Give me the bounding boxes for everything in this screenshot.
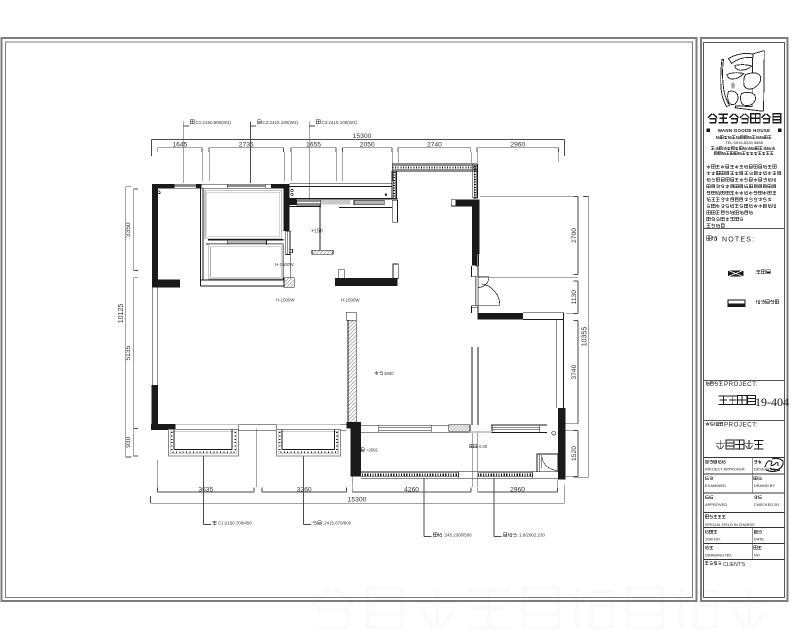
svg-text:DRAWING NO.: DRAWING NO. (705, 553, 732, 558)
svg-text:NO: NO (754, 553, 760, 558)
svg-text:1645: 1645 (172, 142, 187, 149)
svg-text::2415.670/900: :2415.670/900 (323, 521, 352, 526)
svg-text:2050: 2050 (360, 142, 375, 149)
svg-text:=2602: =2602 (366, 448, 378, 453)
svg-text:2900: 2900 (384, 371, 394, 376)
svg-text:TEL:0516-8333 5888: TEL:0516-8333 5888 (725, 140, 763, 145)
svg-text:CHECKED BY: CHECKED BY (754, 502, 780, 507)
svg-text:2960: 2960 (510, 487, 525, 494)
svg-text:H-1500W: H-1500W (276, 298, 295, 303)
svg-text:15300: 15300 (353, 133, 372, 140)
svg-text:3260: 3260 (297, 487, 312, 494)
svg-text::1.8/2902.230: :1.8/2902.230 (518, 533, 545, 538)
svg-text:2735: 2735 (239, 142, 254, 149)
svg-text:1655: 1655 (306, 142, 321, 149)
svg-text:PROJECT:: PROJECT: (724, 381, 758, 388)
svg-text:APPROVED: APPROVED (705, 502, 727, 507)
svg-text:1130: 1130 (571, 290, 578, 305)
svg-text::245.2300/500: :245.2300/500 (444, 533, 473, 538)
svg-text:SPECIAL FIELD IN CHARGE: SPECIAL FIELD IN CHARGE (705, 523, 755, 527)
svg-text:WANN GOODE HOUSE: WANN GOODE HOUSE (718, 128, 771, 133)
svg-text:PROJECT:: PROJECT: (724, 421, 758, 428)
svg-text:EXAMINED: EXAMINED (705, 483, 726, 488)
svg-text:10355: 10355 (581, 327, 588, 347)
svg-text:3635: 3635 (198, 487, 213, 494)
svg-text:C3:2415.100(W2): C3:2415.100(W2) (322, 120, 358, 125)
svg-text:2740: 2740 (427, 142, 442, 149)
svg-text:3350: 3350 (125, 222, 132, 237)
svg-text:4260: 4260 (404, 487, 419, 494)
svg-text:0.00: 0.00 (479, 444, 488, 449)
svg-text:2700: 2700 (571, 228, 578, 243)
svg-text:5135: 5135 (125, 345, 132, 360)
svg-text:H-1500W: H-1500W (275, 262, 294, 267)
svg-text:2960: 2960 (510, 142, 525, 149)
svg-text:H-1500W: H-1500W (341, 298, 360, 303)
svg-text:PROJECT APPROVER: PROJECT APPROVER (705, 468, 745, 472)
svg-text:NOTES:: NOTES: (722, 237, 755, 244)
svg-text:CLIENT'S: CLIENT'S (723, 562, 746, 568)
svg-text:DATE: DATE (754, 537, 765, 542)
svg-text:C1:2150.600(W1): C1:2150.600(W1) (196, 120, 232, 125)
svg-text:930: 930 (125, 436, 132, 447)
svg-text:DRAWN BY: DRAWN BY (754, 483, 776, 488)
svg-text:15300: 15300 (348, 497, 367, 504)
svg-text:JOB NO.: JOB NO. (705, 537, 721, 542)
svg-text:10125: 10125 (118, 304, 125, 324)
svg-text:C1:2150.700/450: C1:2150.700/450 (218, 521, 252, 526)
svg-text:+150: +150 (311, 229, 323, 235)
svg-text:C2:2415.100(W2): C2:2415.100(W2) (263, 120, 299, 125)
svg-text:3740: 3740 (571, 364, 578, 379)
svg-text:19-404: 19-404 (755, 395, 789, 409)
svg-text:1520: 1520 (571, 446, 578, 461)
